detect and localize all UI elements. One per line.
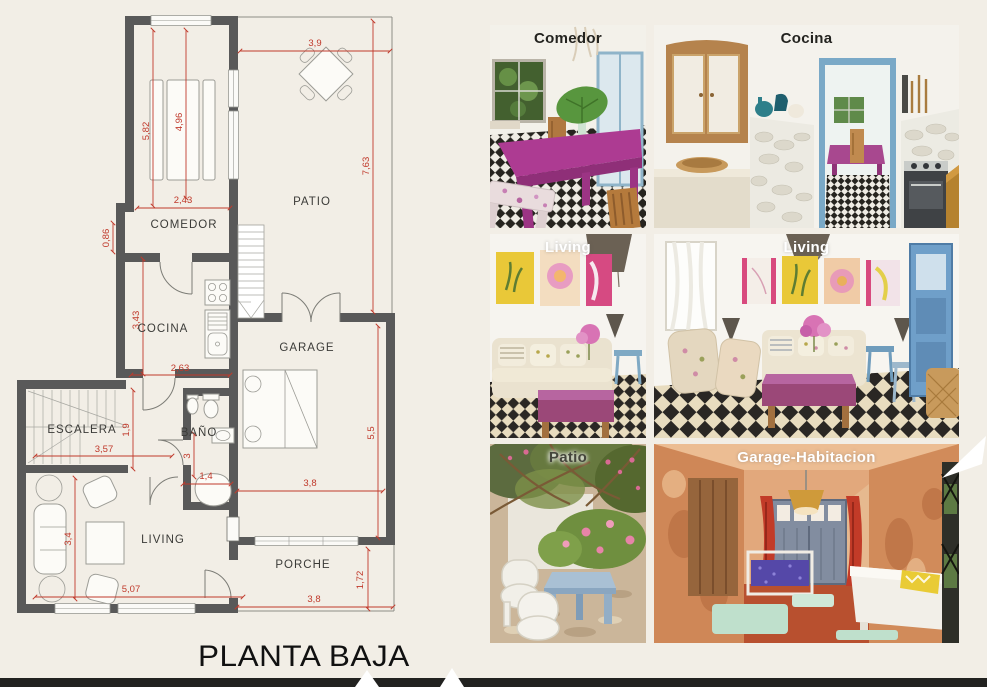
photo-living-small: Living — [490, 234, 646, 438]
photo-caption-garage: Garage-Habitacion — [654, 449, 959, 466]
dim-patio-height: 7,63 — [361, 157, 372, 176]
room-label-living: LIVING — [141, 534, 185, 546]
photo-caption-living-large: Living — [654, 239, 959, 256]
dim-porche-w: 3,8 — [307, 594, 320, 605]
photo-caption-comedor: Comedor — [490, 30, 646, 47]
watermark-arrow-icon — [938, 432, 987, 494]
dim-living-w: 5,07 — [122, 584, 141, 595]
dim-hall-h: 1,9 — [121, 423, 132, 436]
photo-caption-cocina: Cocina — [654, 30, 959, 47]
bottom-bar — [0, 678, 987, 687]
chimenea-marker — [227, 517, 239, 541]
photo-caption-living-small: Living — [490, 239, 646, 256]
dim-bano-h: 3 — [182, 453, 193, 458]
photo-caption-patio: Patio — [490, 449, 646, 466]
garage-photo-art — [654, 444, 959, 643]
patio-photo-art — [490, 444, 646, 643]
garage-bed — [243, 370, 317, 448]
dim-cocina-w: 2,63 — [171, 363, 190, 374]
living-large-photo-art — [654, 234, 959, 438]
floor-plan: 3,9 7,63 5,82 4,96 2,43 0,86 3,43 2,63 1… — [0, 0, 460, 675]
room-label-cocina: COCINA — [138, 323, 189, 335]
kitchen-fixtures — [205, 280, 230, 358]
room-label-patio: PATIO — [293, 196, 331, 208]
dim-comedor-h1: 5,82 — [141, 122, 152, 141]
dim-comedor-h2: 4,96 — [174, 113, 185, 132]
watermark-peaks-icon — [345, 664, 475, 687]
photo-cocina: Cocina — [654, 25, 959, 228]
dim-patio-width: 3,9 — [308, 38, 321, 49]
room-label-bano: BAÑO — [181, 426, 218, 439]
cocina-photo-art — [654, 25, 959, 228]
dim-bano-w: 1,4 — [199, 471, 212, 482]
patio-table-set — [298, 46, 353, 101]
photo-patio: Patio — [490, 444, 646, 643]
dim-step: 0,86 — [101, 229, 112, 248]
dim-garage-h: 5,5 — [366, 426, 377, 439]
room-label-escalera: ESCALERA — [47, 424, 116, 436]
dim-porche-h: 1,72 — [355, 571, 366, 590]
living-small-photo-art — [490, 234, 646, 438]
dim-living-h: 3,4 — [63, 532, 74, 545]
living-furniture — [34, 474, 124, 605]
dim-escalera-w: 3,57 — [95, 444, 114, 455]
photo-comedor: Comedor — [490, 25, 646, 228]
dim-garage-w: 3,8 — [303, 478, 316, 489]
comedor-photo-art — [490, 25, 646, 228]
stairs-patio — [238, 225, 264, 318]
room-label-garage: GARAGE — [279, 342, 334, 354]
photo-garage-habitacion: Garage-Habitacion — [654, 444, 959, 643]
room-label-comedor: COMEDOR — [150, 219, 217, 231]
photo-living-large: Living — [654, 234, 959, 438]
dim-comedor-w: 2,43 — [174, 195, 193, 206]
room-label-porche: PORCHE — [275, 559, 330, 571]
